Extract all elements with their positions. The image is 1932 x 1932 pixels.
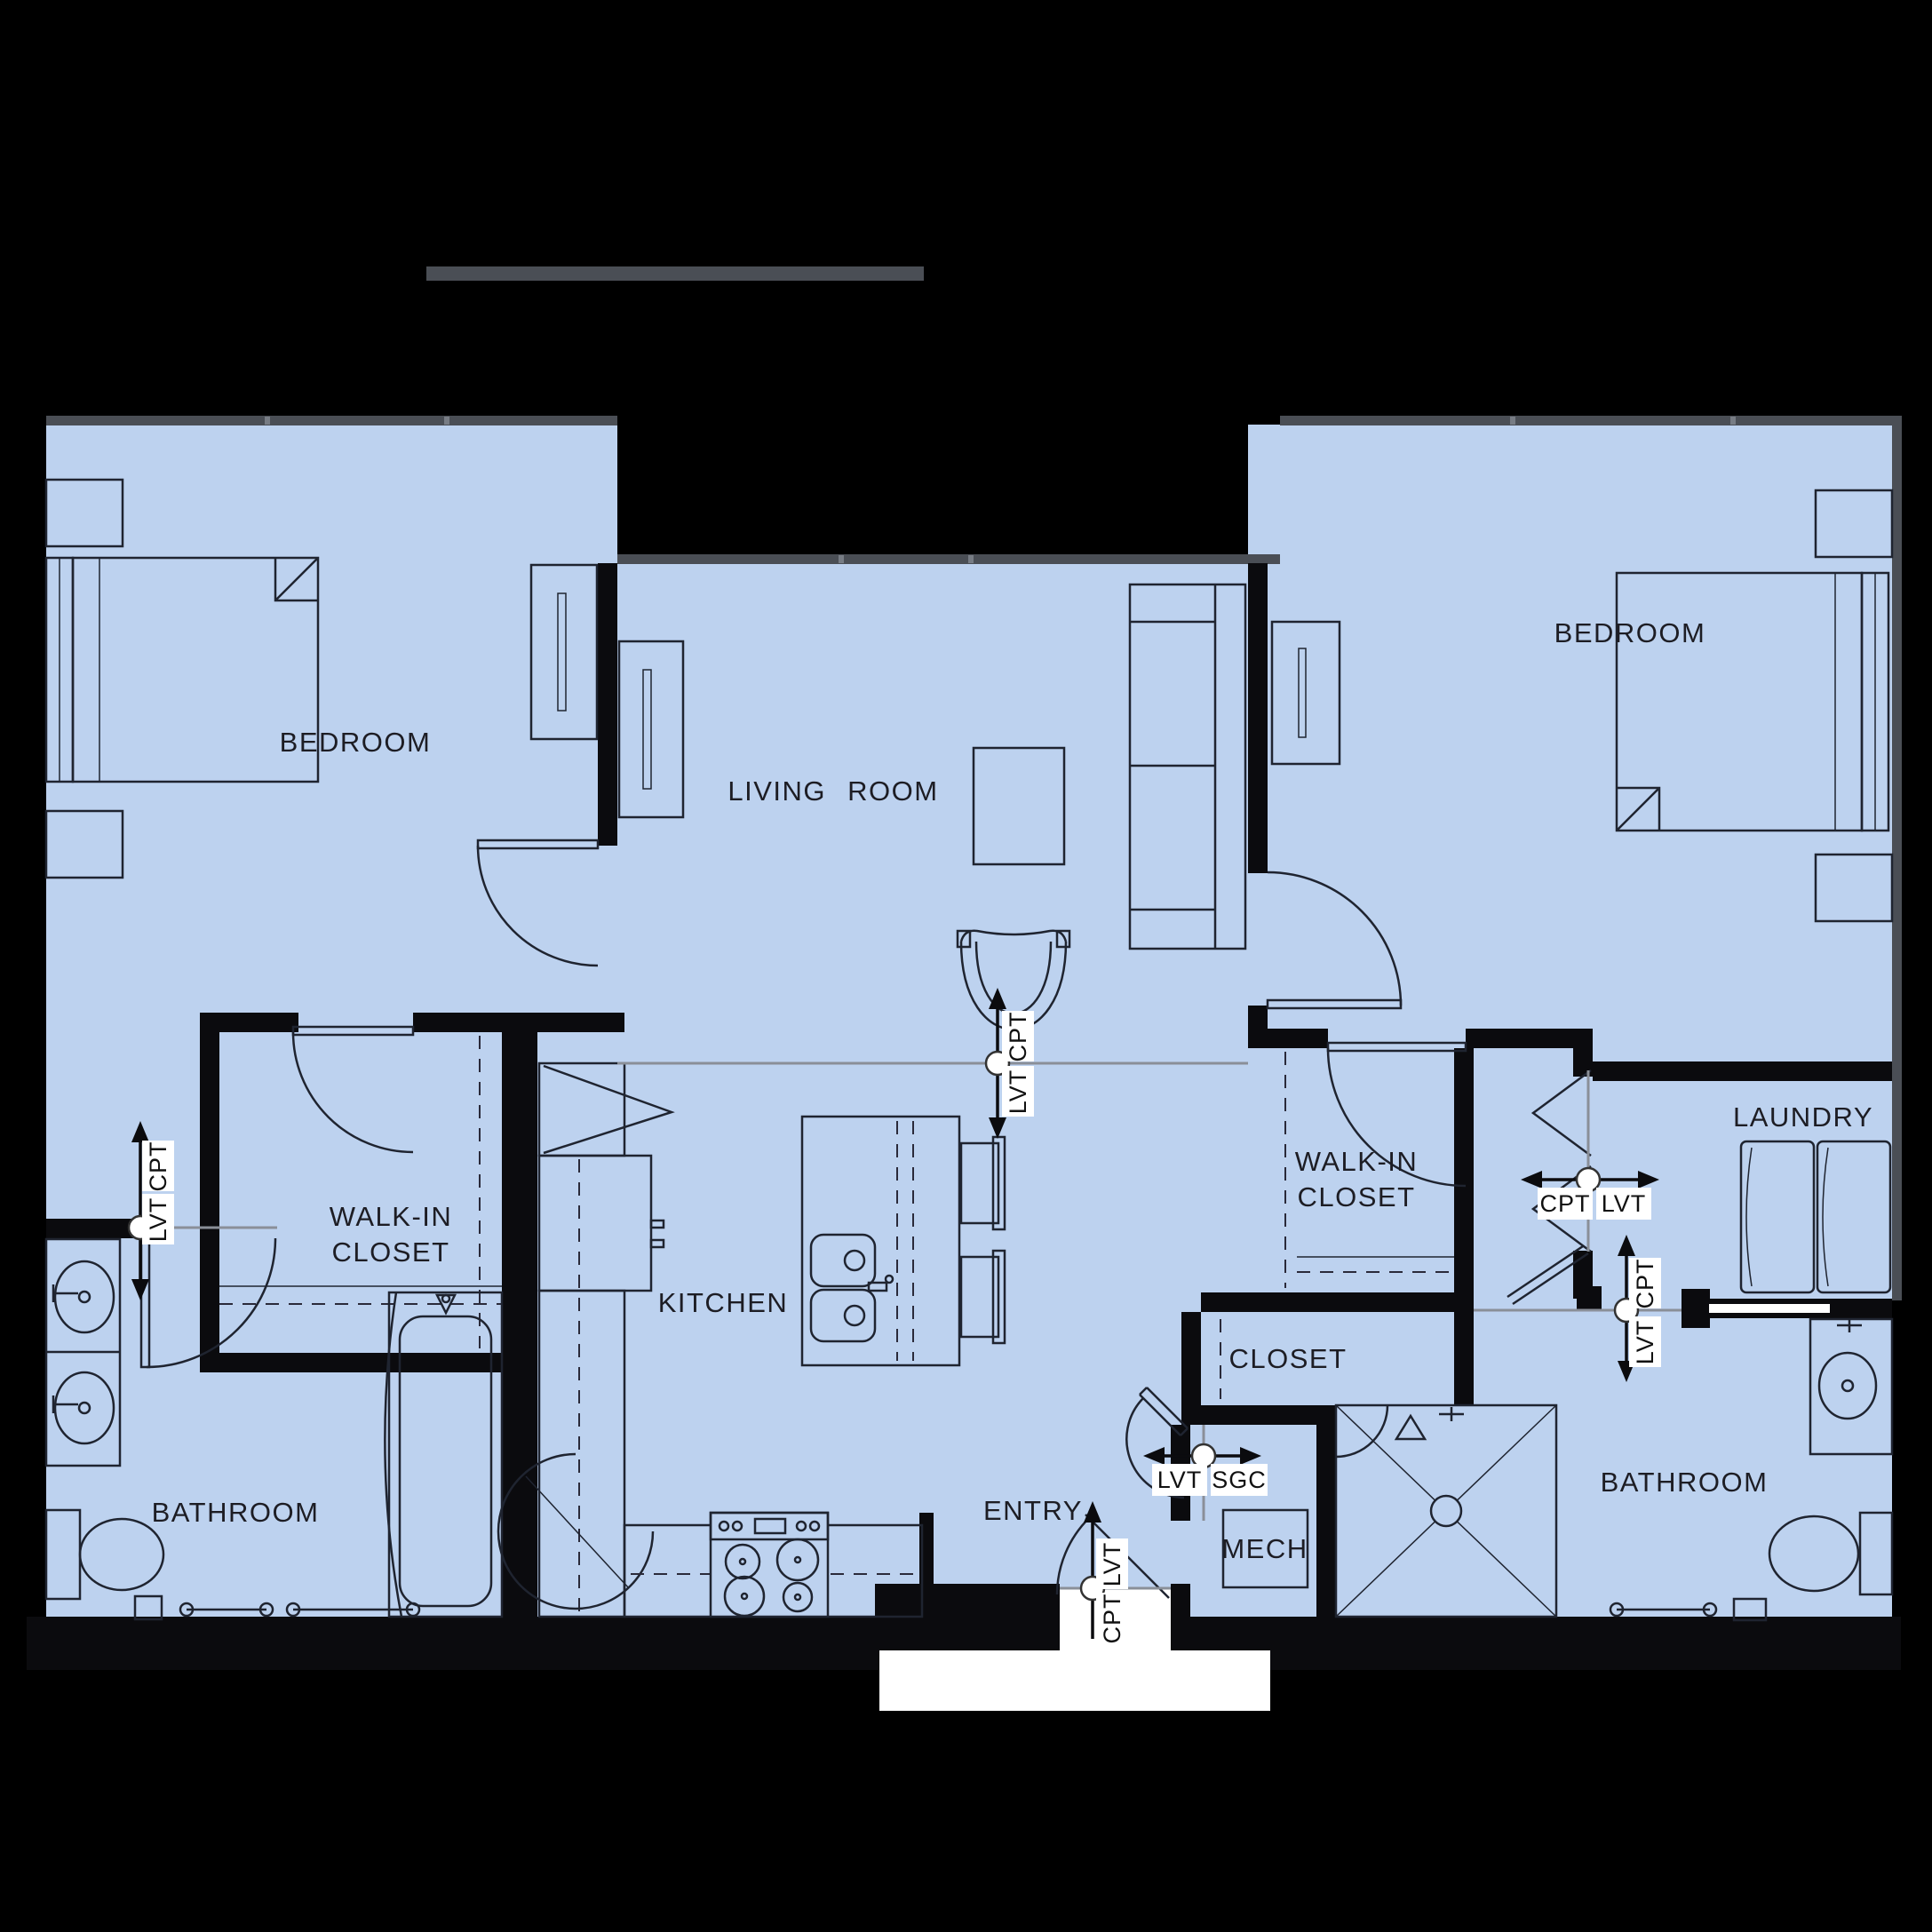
pocket-door-icon	[1709, 1304, 1830, 1313]
mullion-icon	[839, 555, 844, 563]
room-label-mech: MECH	[1221, 1533, 1308, 1564]
wall-closetR-top-b	[1466, 1029, 1593, 1048]
room-label-walk-in-closet-right-2: CLOSET	[1297, 1181, 1415, 1212]
flooring-tag: CPT	[1099, 1594, 1125, 1644]
room-label-entry: ENTRY	[983, 1495, 1083, 1526]
wall-closet-coat-right	[1454, 1312, 1474, 1405]
floor-areas	[46, 425, 1892, 1617]
flooring-tag: CPT	[145, 1141, 171, 1192]
window-band-living	[617, 554, 1280, 564]
neighbor-wall-band	[426, 266, 924, 281]
wall-kitchen-left	[502, 1032, 537, 1617]
transition-marker-laundry: CPT LVT	[1521, 1168, 1659, 1220]
range-icon	[711, 1513, 828, 1617]
wall-bathR-cap	[1682, 1289, 1710, 1328]
flooring-tag: CPT	[1632, 1259, 1658, 1309]
room-label-laundry: LAUNDRY	[1733, 1101, 1873, 1133]
wall-closetL-left	[200, 1013, 219, 1372]
flooring-tag: LVT	[145, 1197, 171, 1243]
room-label-kitchen: KITCHEN	[658, 1287, 789, 1318]
room-label-living-room: LIVING ROOM	[727, 775, 938, 807]
room-label-closet: CLOSET	[1228, 1343, 1347, 1374]
mullion-icon	[968, 555, 974, 563]
mullion-icon	[265, 417, 270, 425]
wall-laundry-top	[1593, 1061, 1892, 1081]
flooring-tag: CPT	[1005, 1012, 1031, 1062]
floor-plan: CPT LVT CPT LVT CPT LVT	[0, 0, 1932, 1932]
wall-closetR-joint	[1248, 1006, 1268, 1048]
entry-landing	[879, 1650, 1270, 1711]
wall-closetL-top-b	[413, 1013, 624, 1032]
room-label-bathroom-right: BATHROOM	[1601, 1467, 1769, 1498]
room-label-bedroom-right: BEDROOM	[1554, 617, 1706, 648]
flooring-tag: LVT	[1632, 1320, 1658, 1365]
flooring-tag: LVT	[1602, 1190, 1647, 1217]
shower-hinge-block	[1577, 1286, 1602, 1309]
wall-living-bedroomR	[1248, 563, 1268, 873]
mullion-icon	[1510, 417, 1515, 425]
floor-plan-canvas: CPT LVT CPT LVT CPT LVT	[0, 0, 1932, 1932]
wall-bedroomL-living	[598, 563, 617, 846]
window-band-bedroom-right	[1280, 416, 1892, 425]
wall-mech-right	[1316, 1405, 1336, 1617]
wall-bottom-right	[1190, 1617, 1901, 1670]
wall-closetL-bottom	[200, 1353, 537, 1372]
wall-mech-top	[1190, 1405, 1336, 1425]
wall-closetR-bottom	[1201, 1292, 1474, 1312]
mullion-icon	[444, 417, 449, 425]
flooring-tag: SGC	[1212, 1467, 1267, 1493]
wall-bottom-left	[27, 1617, 875, 1670]
wall-closetR-right	[1454, 1048, 1474, 1312]
flooring-tag: CPT	[1540, 1190, 1591, 1217]
flooring-tag: LVT	[1005, 1069, 1031, 1115]
kitchen-island-icon	[802, 1117, 959, 1365]
mullion-icon	[1730, 417, 1736, 425]
window-band-bedroom-left	[46, 416, 617, 425]
room-label-bedroom-left: BEDROOM	[280, 727, 432, 758]
room-label-walk-in-closet-left-2: CLOSET	[331, 1236, 449, 1268]
transition-marker-mech: LVT SGC	[1143, 1444, 1268, 1496]
window-band-right-wall	[1892, 416, 1902, 1300]
room-label-walk-in-closet-left-1: WALK-IN	[330, 1201, 453, 1232]
room-label-bathroom-left: BATHROOM	[152, 1497, 320, 1528]
room-label-walk-in-closet-right-1: WALK-IN	[1295, 1146, 1419, 1177]
flooring-tag: LVT	[1099, 1542, 1125, 1587]
floor-right-wing	[1248, 425, 1892, 1617]
flooring-tag: LVT	[1157, 1467, 1203, 1493]
